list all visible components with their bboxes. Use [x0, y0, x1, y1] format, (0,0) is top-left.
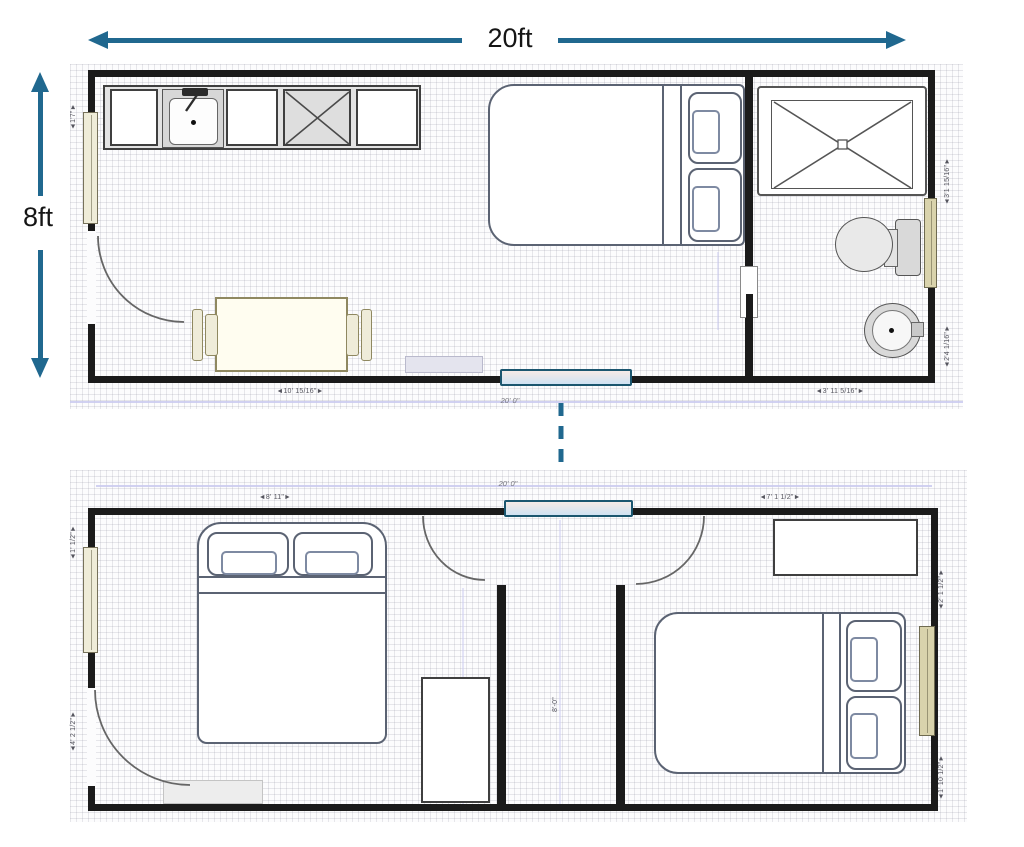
dim-lower-top-right: ◄7' 1 1/2"►: [730, 494, 830, 501]
lower-interior-wall-right: [616, 585, 625, 804]
dim-upper-left-top: ◄1'7"►: [70, 103, 77, 130]
dim-lower-left-bottom: ◄4' 2 1/2"►: [70, 711, 77, 752]
dim-lower-left-top: ◄1' 1/2"►: [70, 525, 77, 560]
arrow-head-up-icon: [31, 72, 49, 92]
dimension-arrow-20ft-right: [558, 38, 886, 43]
arrow-head-down-icon: [31, 358, 49, 378]
dim-lower-top-center: 20' 0": [478, 479, 538, 488]
window-upper-right: [924, 198, 937, 288]
dim-upper-bottom-left: ◄10' 15/16"►: [245, 388, 355, 395]
upper-bathroom-wall: [745, 77, 753, 376]
window-upper-left: [83, 112, 98, 224]
dimension-label-8ft: 8ft: [6, 204, 70, 231]
window-lower-right: [919, 626, 935, 736]
dim-upper-right-bottom: ◄2'4 1/16"►: [944, 325, 951, 368]
dimension-arrow-20ft: [106, 38, 462, 43]
door-opening-lower-entry: [87, 688, 96, 786]
dimension-arrow-8ft: [38, 90, 43, 196]
dim-upper-bottom-center: 20' 0": [480, 396, 540, 405]
arrow-head-left-icon: [88, 31, 108, 49]
arrow-head-right-icon: [886, 31, 906, 49]
dim-lower-top-left: ◄8' 11"►: [225, 494, 325, 501]
upper-floor-exterior-wall: [88, 70, 935, 383]
floor-plan-canvas: 20ft 8ft: [0, 0, 1024, 847]
dim-lower-right-top: ◄2' 1 1/2"►: [938, 569, 945, 610]
window-lower-left: [83, 547, 98, 653]
window-upper-bottom: [500, 369, 632, 386]
dim-upper-right-top: ◄3'1 15/16"►: [944, 158, 951, 205]
dim-upper-bottom-right: ◄3' 11 5/16"►: [785, 388, 895, 395]
pocket-door-panel: [746, 294, 753, 320]
dim-lower-center: 8'-0": [552, 697, 559, 712]
lower-interior-wall-left: [497, 585, 506, 804]
dim-lower-right-bottom: ◄1' 10 1/2"►: [938, 755, 945, 800]
dimension-arrow-8ft-lower: [38, 250, 43, 360]
dimension-label-20ft: 20ft: [462, 25, 558, 52]
window-lower-top: [504, 500, 633, 517]
door-opening-upper-entry: [87, 231, 96, 324]
lower-floor-exterior-wall: [88, 508, 938, 811]
